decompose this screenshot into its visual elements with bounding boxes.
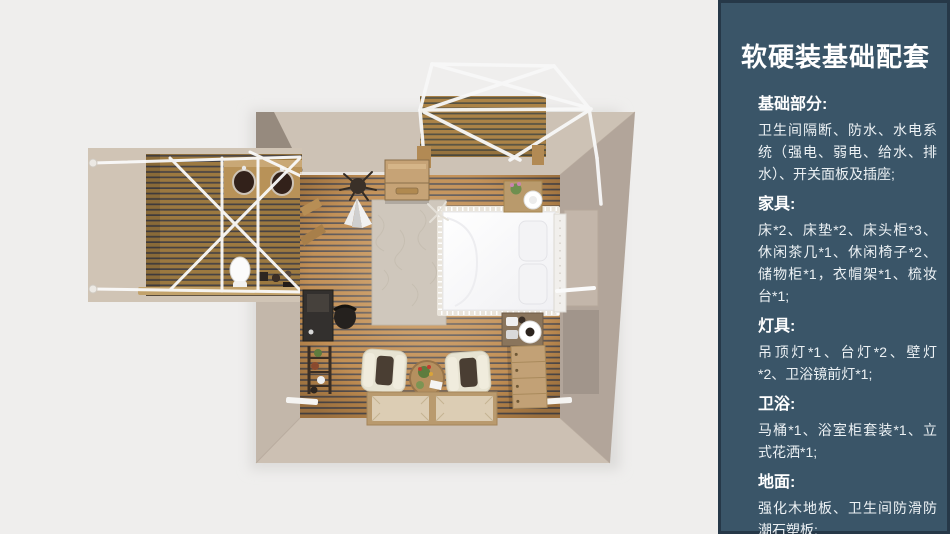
frame-post-top	[89, 159, 97, 167]
slide: 软硬装基础配套 基础部分: 卫生间隔断、防水、水电系统（强电、弱电、给水、排水）…	[0, 0, 950, 534]
desk	[303, 290, 333, 341]
frame-mount-right	[532, 145, 544, 165]
section-basics: 基础部分: 卫生间隔断、防水、水电系统（强电、弱电、给水、排水）、开关面板及插座…	[758, 95, 937, 185]
dresser	[507, 345, 547, 408]
section-heading: 家具:	[758, 195, 937, 215]
section-bath: 卫浴: 马桶*1、浴室柜套装*1、立式花洒*1;	[758, 395, 937, 463]
sink-left	[233, 170, 255, 194]
tea-table	[410, 361, 444, 395]
pillow	[519, 264, 547, 304]
section-heading: 卫浴:	[758, 395, 937, 415]
desk-chair	[334, 305, 356, 329]
panel-title: 软硬装基础配套	[741, 42, 937, 73]
wall-mirror	[563, 310, 599, 394]
section-body: 马桶*1、浴室柜套装*1、立式花洒*1;	[758, 419, 937, 463]
tatami-mats	[367, 392, 497, 425]
section-heading: 基础部分:	[758, 95, 937, 115]
section-body: 卫生间隔断、防水、水电系统（强电、弱电、给水、排水）、开关面板及插座;	[758, 119, 937, 185]
frame-post-bottom	[89, 285, 97, 293]
section-lighting: 灯具: 吊顶灯*1、台灯*2、壁灯*2、卫浴镜前灯*1;	[758, 317, 937, 385]
section-body: 强化木地板、卫生间防滑防潮石塑板;	[758, 497, 937, 534]
section-flooring: 地面: 强化木地板、卫生间防滑防潮石塑板;	[758, 473, 937, 534]
floorplan-svg	[0, 0, 718, 534]
toilet	[230, 257, 250, 290]
section-furniture: 家具: 床*2、床垫*2、床头柜*3、休闲茶几*1、休闲椅子*2、储物柜*1，衣…	[758, 195, 937, 307]
info-panel: 软硬装基础配套 基础部分: 卫生间隔断、防水、水电系统（强电、弱电、给水、排水）…	[718, 0, 950, 534]
floorplan-render	[0, 0, 718, 534]
section-body: 吊顶灯*1、台灯*2、壁灯*2、卫浴镜前灯*1;	[758, 341, 937, 385]
armchair-right	[445, 351, 492, 396]
section-heading: 灯具:	[758, 317, 937, 337]
section-heading: 地面:	[758, 473, 937, 493]
nightstand-top	[504, 181, 542, 212]
nightstand-bottom	[502, 313, 543, 346]
storage-chest	[385, 160, 429, 204]
bathroom-wing	[88, 148, 322, 302]
rug	[372, 200, 446, 325]
pillow	[519, 221, 547, 261]
armchair-left	[361, 349, 408, 394]
section-body: 床*2、床垫*2、床头柜*3、休闲茶几*1、休闲椅子*2、储物柜*1，衣帽架*1…	[758, 219, 937, 307]
